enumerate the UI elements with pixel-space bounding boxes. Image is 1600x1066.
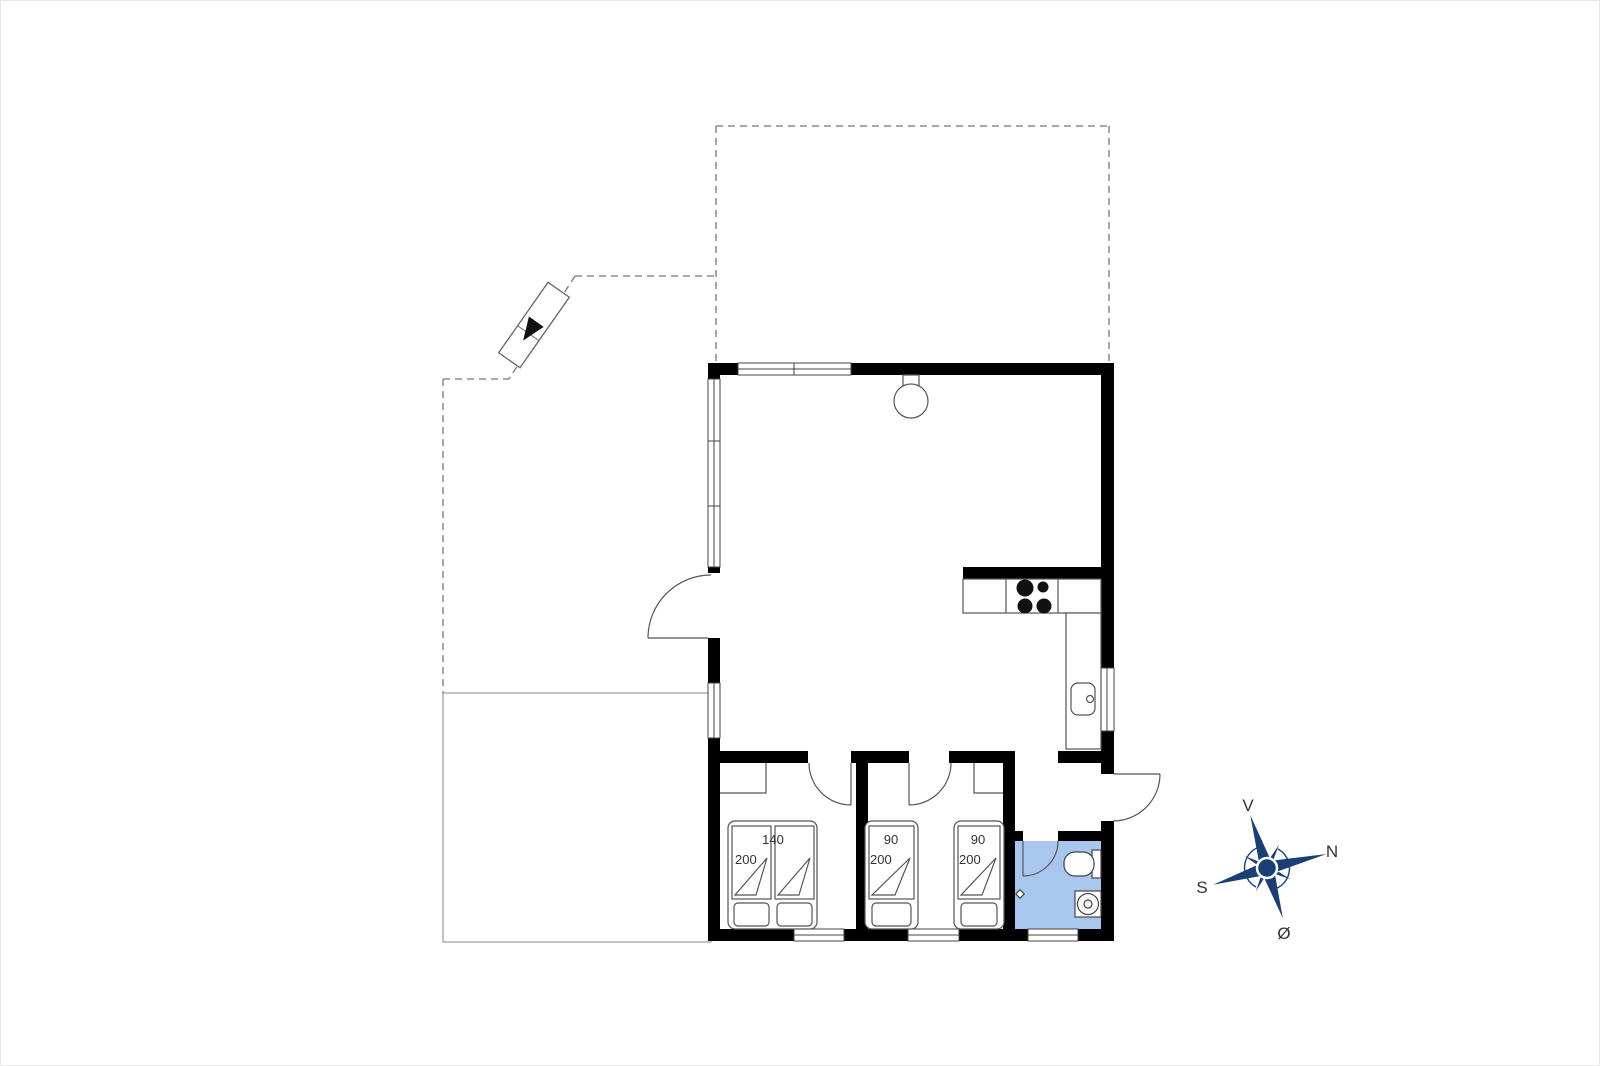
bed1-length-label: 200: [735, 852, 757, 867]
wall-interior-a: [720, 751, 808, 763]
wall-right-a: [1101, 363, 1114, 668]
wall-top-main: [851, 363, 1114, 375]
bedroom1-door: [809, 763, 851, 805]
toilet-icon: [1064, 850, 1101, 878]
wall-bath-top: [1058, 831, 1101, 841]
entrance-ramp: [499, 282, 570, 367]
bedroom-1: 140 200: [720, 763, 817, 929]
bed2-length-label: 200: [870, 852, 892, 867]
bedroom-2: 90 200 90 200: [865, 763, 1004, 929]
wall-interior-hall: [1058, 751, 1101, 763]
bed3-length-label: 200: [959, 852, 981, 867]
window-right-kitchen: [1101, 668, 1114, 731]
compass-label-east: Ø: [1277, 924, 1290, 943]
wall-bottom-b: [844, 929, 908, 941]
bedroom2-door: [909, 763, 951, 805]
window-bottom-bedroom2: [908, 929, 959, 941]
terrace-door: [648, 575, 711, 638]
pillow: [777, 903, 812, 926]
pillow: [734, 903, 769, 926]
wall-right-c: [1101, 821, 1114, 941]
wall-left-b: [708, 567, 720, 573]
window-top: [738, 363, 851, 375]
wood-stove: [894, 375, 928, 418]
wall-bath-stub: [1015, 831, 1023, 841]
compass-label-south: S: [1196, 878, 1207, 897]
upper-terrace-outline: [716, 126, 1109, 363]
wall-bottom-a: [708, 929, 794, 941]
compass-label-west: V: [1242, 796, 1254, 815]
shower-drain-icon: [1075, 891, 1101, 917]
compass-rose: V N S Ø: [1196, 796, 1338, 943]
wardrobe-bedroom2: [974, 763, 1003, 793]
bed2-width-label: 90: [884, 832, 898, 847]
wall-left-c: [708, 638, 720, 683]
front-door: [1113, 774, 1160, 821]
wood-stove-icon: [894, 384, 928, 418]
wall-left-d: [708, 738, 720, 941]
kitchen-counter-side: [1066, 613, 1101, 749]
compass-hub-icon: [1257, 858, 1277, 878]
wall-bottom-d: [1078, 929, 1114, 941]
pillow: [961, 903, 997, 926]
compass-needles: [1209, 811, 1331, 922]
wall-interior-b: [851, 751, 909, 763]
bed3-width-label: 90: [971, 832, 985, 847]
wall-kitchen-stub: [963, 567, 1101, 579]
window-bottom-bedroom1: [794, 929, 844, 941]
compass-label-north: N: [1326, 842, 1338, 861]
wall-left-a: [708, 363, 720, 379]
floorplan-svg: 140 200 90 200 90 200: [1, 1, 1600, 1066]
wardrobe-bedroom1: [720, 763, 766, 793]
wall-right-b: [1101, 731, 1114, 774]
window-left-upper: [708, 379, 720, 567]
floorplan-page: 140 200 90 200 90 200: [0, 0, 1600, 1066]
window-left-lower: [708, 683, 720, 738]
lower-terrace-outline: [443, 693, 711, 942]
single-bed-1: 90 200: [865, 821, 918, 929]
window-bottom-bathroom: [1028, 929, 1078, 941]
wall-divider-bathroom: [1003, 751, 1015, 929]
pillow: [872, 903, 911, 926]
single-bed-2: 90 200: [954, 821, 1004, 929]
kitchen: [963, 579, 1101, 749]
side-terrace-outline: [443, 276, 716, 693]
wall-bottom-c: [959, 929, 1028, 941]
bed1-width-label: 140: [762, 832, 784, 847]
double-bed: 140 200: [728, 821, 817, 929]
